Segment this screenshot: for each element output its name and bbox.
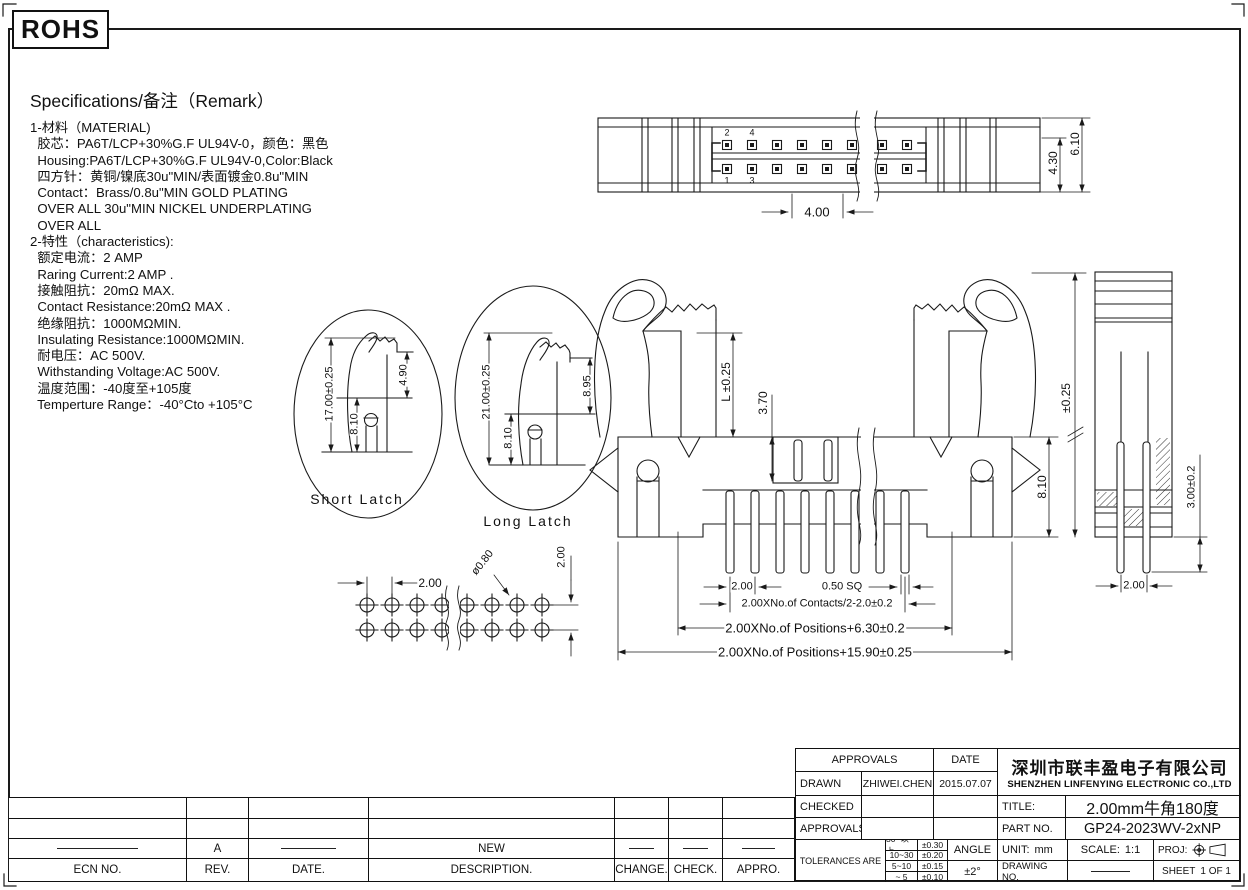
pin-number-2: 2	[723, 129, 730, 138]
checked-label: CHECKED	[796, 796, 862, 818]
revision-header-appro: APPRO.	[723, 859, 795, 882]
projection-cell: PROJ:	[1154, 840, 1239, 861]
spec-line: 温度范围：-40度至+105度	[30, 381, 333, 397]
revision-header-ecn: ECN NO.	[9, 859, 187, 882]
company-name-en: SHENZHEN LINFENYING ELECTRONIC CO.,LTD	[1007, 779, 1231, 790]
drawing-no-value	[1068, 861, 1154, 882]
tolerance-range: 5~10	[886, 861, 918, 872]
revision-empty-cell	[369, 798, 615, 819]
spec-line: Insulating Resistance:1000MΩMIN.	[30, 332, 333, 348]
tolerance-value: ±0.30	[918, 840, 948, 851]
dim-front-slot-depth: 3.70	[757, 390, 769, 415]
spec-line: Housing:PA6T/LCP+30%G.F UL94V-0,Color:Bl…	[30, 153, 333, 169]
revision-header-change: CHANGE.	[615, 859, 669, 882]
scale-value: 1:1	[1125, 844, 1140, 856]
drawn-label: DRAWN	[796, 772, 862, 796]
unit-label: UNIT:	[1002, 844, 1030, 856]
approvals-header: APPROVALS	[796, 749, 934, 772]
scale-cell: SCALE: 1:1	[1068, 840, 1154, 861]
drawing-no-label: DRAWING NO.	[998, 861, 1068, 882]
part-no-value: GP24-2023WV-2xNP	[1066, 818, 1239, 840]
revision-header-check: CHECK.	[669, 859, 723, 882]
spec-line: 耐电压：AC 500V.	[30, 348, 333, 364]
revision-header-rev: REV.	[187, 859, 249, 882]
spec-line: 绝缘阻抗：1000MΩMIN.	[30, 316, 333, 332]
spec-line: Withstanding Voltage:AC 500V.	[30, 364, 333, 380]
tolerances-label: TOLERANCES ARE	[796, 840, 886, 882]
tolerance-value: ±0.15	[918, 861, 948, 872]
company-block: 深圳市联丰盈电子有限公司 SHENZHEN LINFENYING ELECTRO…	[998, 749, 1241, 796]
pin-number-4: 4	[748, 129, 755, 138]
side-view	[1095, 272, 1172, 573]
tolerance-value: ±0.20	[918, 851, 948, 862]
angle-value: ±2°	[948, 861, 998, 882]
tolerance-value: ±0.10	[918, 872, 948, 883]
dim-front-positions-span: 2.00XNo.of Positions+6.30±0.2	[724, 622, 906, 635]
revision-empty-cell	[669, 819, 723, 839]
dim-front-pin-square: 0.50 SQ	[821, 582, 863, 593]
revision-empty-cell	[669, 798, 723, 819]
title-block: APPROVALS DATE DRAWN ZHIWEI.CHEN 2015.07…	[795, 748, 1240, 881]
spec-line: 四方针：黄铜/镍底30u"MIN/表面镀金0.8u"MIN	[30, 169, 333, 185]
placeholder-dash	[683, 848, 707, 849]
placeholder-dash	[57, 848, 138, 849]
sheet-value: 1 OF 1	[1200, 866, 1231, 877]
dim-front-contacts-span: 2.00XNo.of Contacts/2-2.0±0.2	[741, 599, 894, 610]
pin-number-1: 1	[723, 177, 730, 186]
spec-line: 2-特性（characteristics):	[30, 234, 333, 250]
tolerance-range: 30~以上	[886, 840, 918, 851]
placeholder-dash	[629, 848, 653, 849]
dim-short-latch-tip: 4.90	[399, 363, 410, 386]
projection-symbol	[1192, 842, 1239, 858]
date-header: DATE	[934, 749, 998, 772]
revision-description-value: NEW	[369, 839, 615, 859]
revision-change-dash	[615, 839, 669, 859]
drawn-name: ZHIWEI.CHEN	[862, 772, 934, 796]
projection-label: PROJ:	[1158, 845, 1187, 856]
spec-line: Temperture Range：-40°Cto +105°C	[30, 397, 333, 413]
revision-empty-cell	[723, 819, 795, 839]
title-label: TITLE:	[998, 796, 1066, 818]
front-view	[590, 280, 1040, 573]
dim-top-inner-height: 4.30	[1047, 150, 1059, 175]
placeholder-dash	[1091, 871, 1130, 872]
revision-empty-cell	[369, 819, 615, 839]
dim-front-pin-pitch: 2.00	[730, 582, 753, 593]
revision-header-description: DESCRIPTION.	[369, 859, 615, 882]
drawn-date: 2015.07.07	[934, 772, 998, 796]
revision-check-dash	[669, 839, 723, 859]
spec-line: 胶芯：PA6T/LCP+30%G.F UL94V-0，颜色：黑色	[30, 136, 333, 152]
sheet-label: SHEET	[1162, 866, 1195, 877]
footprint-view	[338, 556, 578, 656]
scale-label: SCALE:	[1081, 844, 1120, 856]
dim-front-latch-height: L ±0.25	[720, 361, 732, 403]
dim-front-overall-span: 2.00XNo.of Positions+15.90±0.25	[717, 646, 913, 659]
long-latch-detail	[455, 286, 611, 510]
placeholder-dash	[281, 848, 336, 849]
latch-left	[590, 280, 716, 492]
part-no-label: PART NO.	[998, 818, 1066, 840]
dim-side-tail-length: 3.00±0.2	[1187, 465, 1198, 510]
dim-footprint-row-pitch: 2.00	[557, 545, 568, 568]
long-latch-caption: Long Latch	[482, 514, 573, 528]
company-name-cn: 深圳市联丰盈电子有限公司	[1012, 754, 1228, 779]
dim-top-overall-height: 6.10	[1069, 131, 1081, 156]
placeholder-dash	[742, 848, 775, 849]
spec-line: OVER ALL	[30, 218, 333, 234]
dim-front-body-height: 8.10	[1036, 474, 1048, 499]
dim-short-latch-overall: 17.00±0.25	[325, 366, 336, 423]
approvals-name	[862, 818, 934, 840]
angle-label: ANGLE	[948, 840, 998, 861]
revision-rev-value: A	[187, 839, 249, 859]
spec-line: Contact Resistance:20mΩ MAX .	[30, 299, 333, 315]
checked-date	[934, 796, 998, 818]
dim-footprint-pitch: 2.00	[417, 577, 442, 589]
revision-empty-cell	[249, 798, 369, 819]
dim-top-notch: 4.00	[803, 206, 830, 219]
revision-header-date: DATE.	[249, 859, 369, 882]
tolerance-range: ~ 5	[886, 872, 918, 883]
dim-side-pin-pitch: 2.00	[1122, 581, 1145, 592]
latch-right	[914, 280, 1040, 492]
revision-empty-cell	[9, 798, 187, 819]
revision-ecn-dash	[9, 839, 187, 859]
revision-empty-cell	[615, 798, 669, 819]
revision-empty-cell	[187, 819, 249, 839]
revision-empty-cell	[9, 819, 187, 839]
unit-value: mm	[1035, 844, 1053, 856]
top-view	[598, 111, 1040, 201]
revision-table: A NEW ECN NO. REV. DATE. DESCRIPTION. CH…	[9, 797, 795, 881]
spec-line: Raring Current:2 AMP .	[30, 267, 333, 283]
revision-empty-cell	[615, 819, 669, 839]
unit-cell: UNIT: mm	[998, 840, 1068, 861]
dim-short-latch-body: 8.10	[350, 412, 361, 435]
approvals-label: APPROVALS	[796, 818, 862, 840]
revision-empty-cell	[187, 798, 249, 819]
revision-date-dash	[249, 839, 369, 859]
specifications-title: Specifications/备注（Remark）	[30, 88, 333, 113]
approvals-date	[934, 818, 998, 840]
drawing-sheet: ROHS Specifications/备注（Remark） 1-材料（MATE…	[0, 0, 1248, 890]
dim-long-latch-tip: 8.95	[583, 374, 594, 397]
spec-line: 1-材料（MATERIAL)	[30, 120, 333, 136]
checked-name	[862, 796, 934, 818]
spec-line: Contact：Brass/0.8u"MIN GOLD PLATING	[30, 185, 333, 201]
revision-empty-cell	[249, 819, 369, 839]
short-latch-caption: Short Latch	[309, 492, 405, 506]
tolerance-range: 10~30	[886, 851, 918, 862]
dim-long-latch-overall: 21.00±0.25	[482, 364, 493, 421]
sheet-cell: SHEET 1 OF 1	[1154, 861, 1239, 882]
title-value: 2.00mm牛角180度	[1066, 796, 1239, 818]
spec-line: OVER ALL 30u"MIN NICKEL UNDERPLATING	[30, 201, 333, 217]
spec-line: 接触阻抗：20mΩ MAX.	[30, 283, 333, 299]
specifications-block: Specifications/备注（Remark） 1-材料（MATERIAL)…	[30, 88, 333, 413]
dim-long-latch-body: 8.10	[504, 426, 515, 449]
revision-appro-dash	[723, 839, 795, 859]
pin-number-3: 3	[748, 177, 755, 186]
dim-side-height-tol: ±0.25	[1060, 382, 1072, 414]
rohs-badge: ROHS	[12, 10, 109, 49]
spec-line: 额定电流：2 AMP	[30, 250, 333, 266]
revision-empty-cell	[723, 798, 795, 819]
